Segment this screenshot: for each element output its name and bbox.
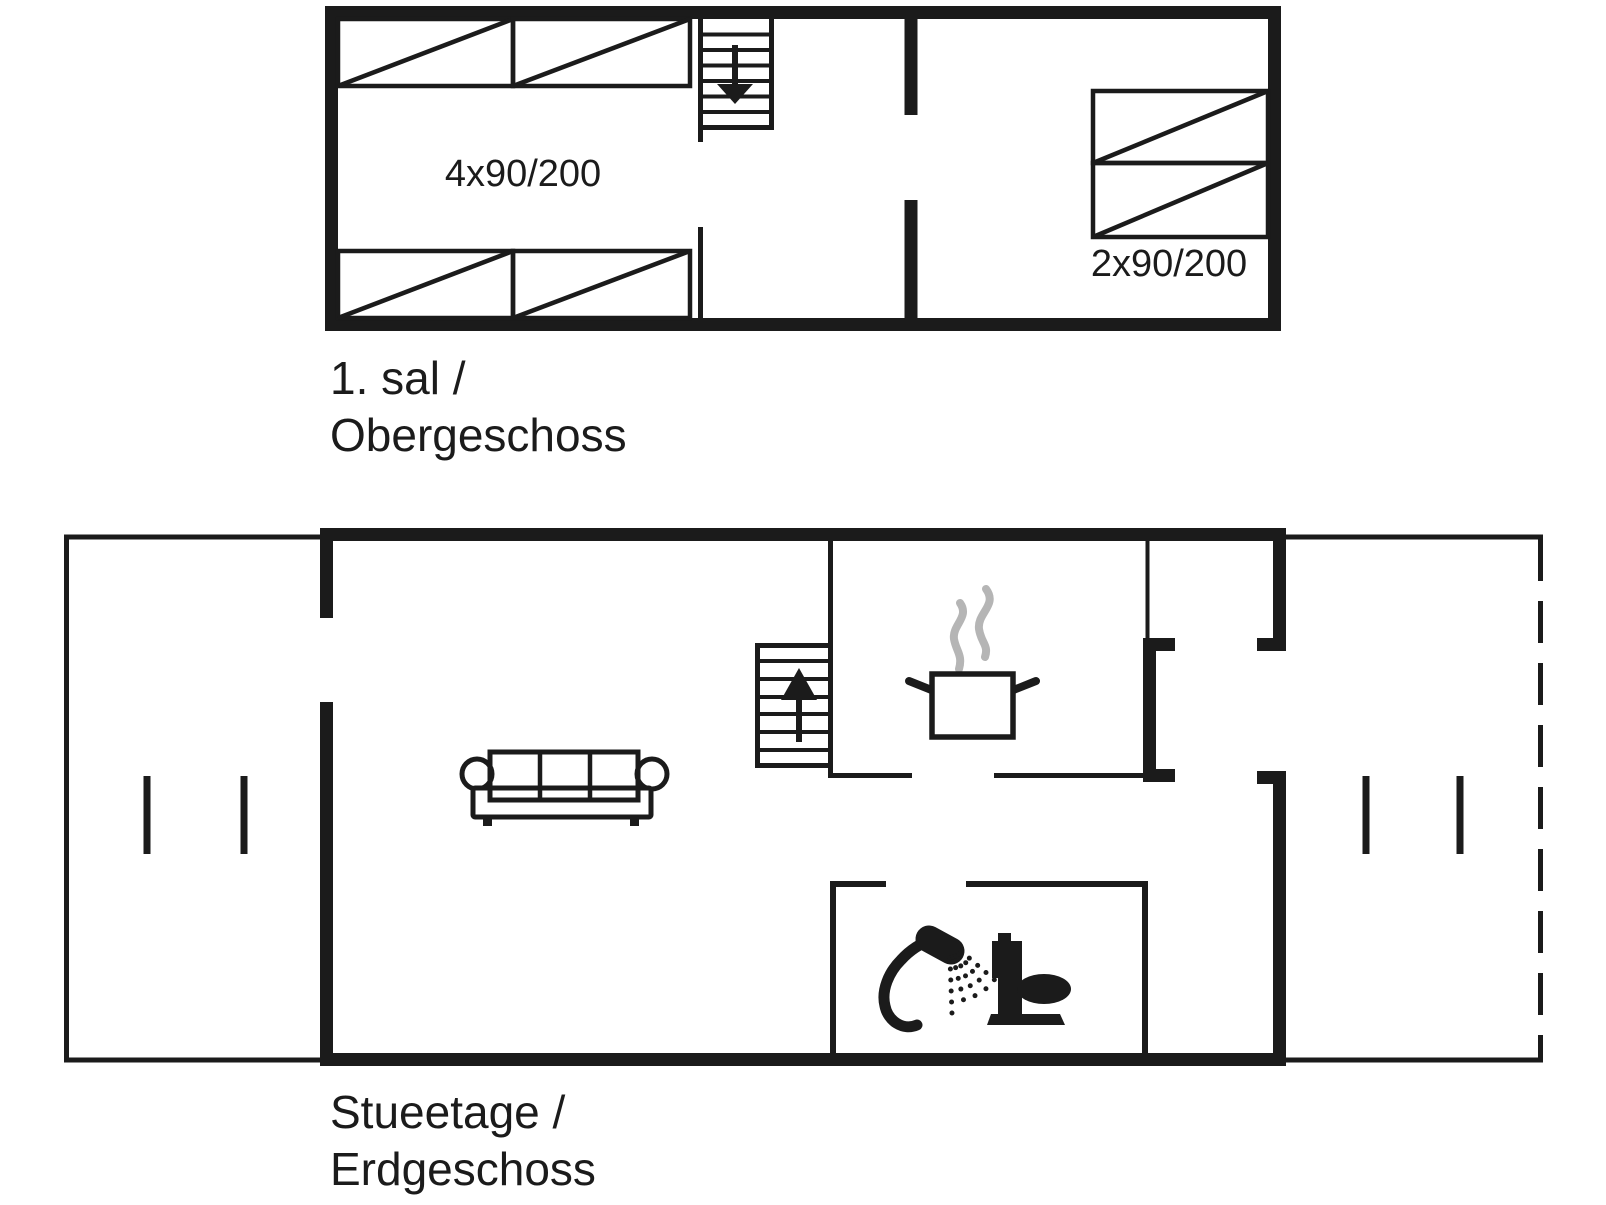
ground-outer-wall xyxy=(320,528,1286,1066)
upper-floor-plan: 4x90/200 2x90/200 xyxy=(332,12,1275,325)
ground-floor-label: Stueetage / Erdgeschoss xyxy=(330,1086,596,1195)
ground-floor-label-line1: Stueetage / xyxy=(330,1086,566,1138)
ground-floor-plan xyxy=(64,528,1543,1066)
bed-icon xyxy=(513,251,690,318)
bed-icon xyxy=(1093,163,1268,237)
toilet-icon xyxy=(987,933,1071,1025)
sofa-icon xyxy=(462,752,667,826)
floorplan-svg: 4x90/200 2x90/200 1. sal / Obergeschoss xyxy=(0,0,1606,1205)
left-annex xyxy=(64,535,322,1062)
steam-icon xyxy=(954,603,963,669)
ground-floor-label-line2: Erdgeschoss xyxy=(330,1143,596,1195)
stairs-up xyxy=(755,643,829,768)
steam-icon xyxy=(979,589,990,657)
bed-icon xyxy=(338,251,513,318)
bed-dimension-label: 4x90/200 xyxy=(445,153,601,195)
upper-floor-label-line2: Obergeschoss xyxy=(330,409,627,461)
shower-icon xyxy=(884,939,997,1027)
bathroom-walls xyxy=(830,881,1148,1056)
upper-floor-label-line1: 1. sal / xyxy=(330,352,466,404)
bed-dimension-label: 2x90/200 xyxy=(1091,243,1247,285)
ground-interior-walls xyxy=(828,541,1175,782)
right-annex xyxy=(1284,537,1543,1060)
stairs-down xyxy=(698,19,774,142)
bed-icon xyxy=(513,19,690,86)
upper-floor-label: 1. sal / Obergeschoss xyxy=(330,352,627,461)
bed-icon xyxy=(1093,91,1268,163)
floorplan-page: 4x90/200 2x90/200 1. sal / Obergeschoss xyxy=(0,0,1606,1205)
cooking-pot-icon xyxy=(909,589,1036,737)
bed-icon xyxy=(338,19,513,86)
